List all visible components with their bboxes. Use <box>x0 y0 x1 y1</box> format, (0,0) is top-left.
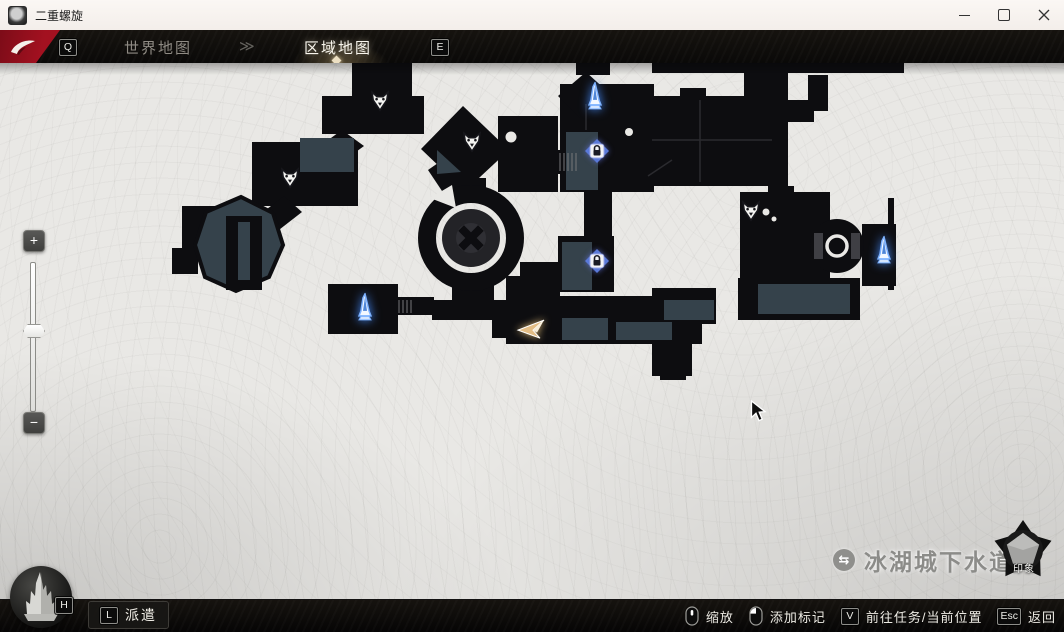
region-map-shortcut: E <box>431 39 449 56</box>
hint-back-label: 返回 <box>1028 607 1056 626</box>
hint-zoom-label: 缩放 <box>706 607 734 626</box>
waypoint-marker[interactable] <box>353 293 377 326</box>
hint-back[interactable]: Esc 返回 <box>997 607 1056 626</box>
zoom-in-button[interactable]: + <box>23 230 45 252</box>
map-nav-bar: Q 世界地图 ≫ 区域地图 E <box>0 30 1064 63</box>
hint-goto-task[interactable]: V 前往任务/当前位置 <box>841 607 983 626</box>
close-icon <box>1038 9 1050 21</box>
tab-world-map[interactable]: 世界地图 <box>118 37 198 58</box>
back-shortcut: Esc <box>997 608 1021 625</box>
goto-task-shortcut: V <box>841 608 859 625</box>
dispatch-shortcut: L <box>100 607 118 624</box>
waypoint-marker[interactable] <box>583 82 607 115</box>
tab-region-map[interactable]: 区域地图 <box>302 37 374 58</box>
window-title: 二重螺旋 <box>35 7 83 24</box>
emblem-shortcut: H <box>55 597 73 614</box>
hint-zoom[interactable]: 缩放 <box>685 606 734 626</box>
switch-location-icon: ⇆ <box>833 549 855 571</box>
compass-label: 印象 <box>1013 560 1035 575</box>
game-logo-icon <box>9 38 39 56</box>
hint-add-marker[interactable]: 添加标记 <box>749 606 826 626</box>
dispatch-label: 派遣 <box>125 605 157 625</box>
world-map-shortcut: Q <box>59 39 77 56</box>
app-icon <box>8 6 27 25</box>
enemy-marker[interactable] <box>279 167 301 194</box>
enemy-marker[interactable] <box>369 90 391 117</box>
player-marker <box>516 318 546 345</box>
dispatch-button[interactable]: L 派遣 <box>88 601 169 629</box>
enemy-marker[interactable] <box>740 200 762 227</box>
window-titlebar: 二重螺旋 <box>0 0 1064 30</box>
minimize-button[interactable] <box>944 0 984 30</box>
mouse-button-icon <box>749 606 763 626</box>
waypoint-marker[interactable] <box>872 236 896 269</box>
locked-marker[interactable] <box>584 248 610 279</box>
control-hints: 缩放 添加标记 V 前往任务/当前位置 Esc 返回 <box>685 604 1056 628</box>
hint-add-marker-label: 添加标记 <box>770 607 826 626</box>
hint-goto-task-label: 前往任务/当前位置 <box>866 607 983 626</box>
chevron-separator-icon: ≫ <box>239 37 255 55</box>
compass-emblem: 印象 <box>991 518 1055 582</box>
mouse-scroll-icon <box>685 606 699 626</box>
maximize-icon <box>998 9 1010 21</box>
mouse-cursor <box>750 400 767 428</box>
close-button[interactable] <box>1024 0 1064 30</box>
game-logo <box>0 30 60 63</box>
enemy-marker[interactable] <box>461 131 483 158</box>
minimize-icon <box>959 15 970 16</box>
locked-marker[interactable] <box>584 138 610 169</box>
maximize-button[interactable] <box>984 0 1024 30</box>
location-switcher[interactable]: ⇆ 冰湖城下水道 <box>833 543 1014 577</box>
zoom-out-button[interactable]: − <box>23 412 45 434</box>
